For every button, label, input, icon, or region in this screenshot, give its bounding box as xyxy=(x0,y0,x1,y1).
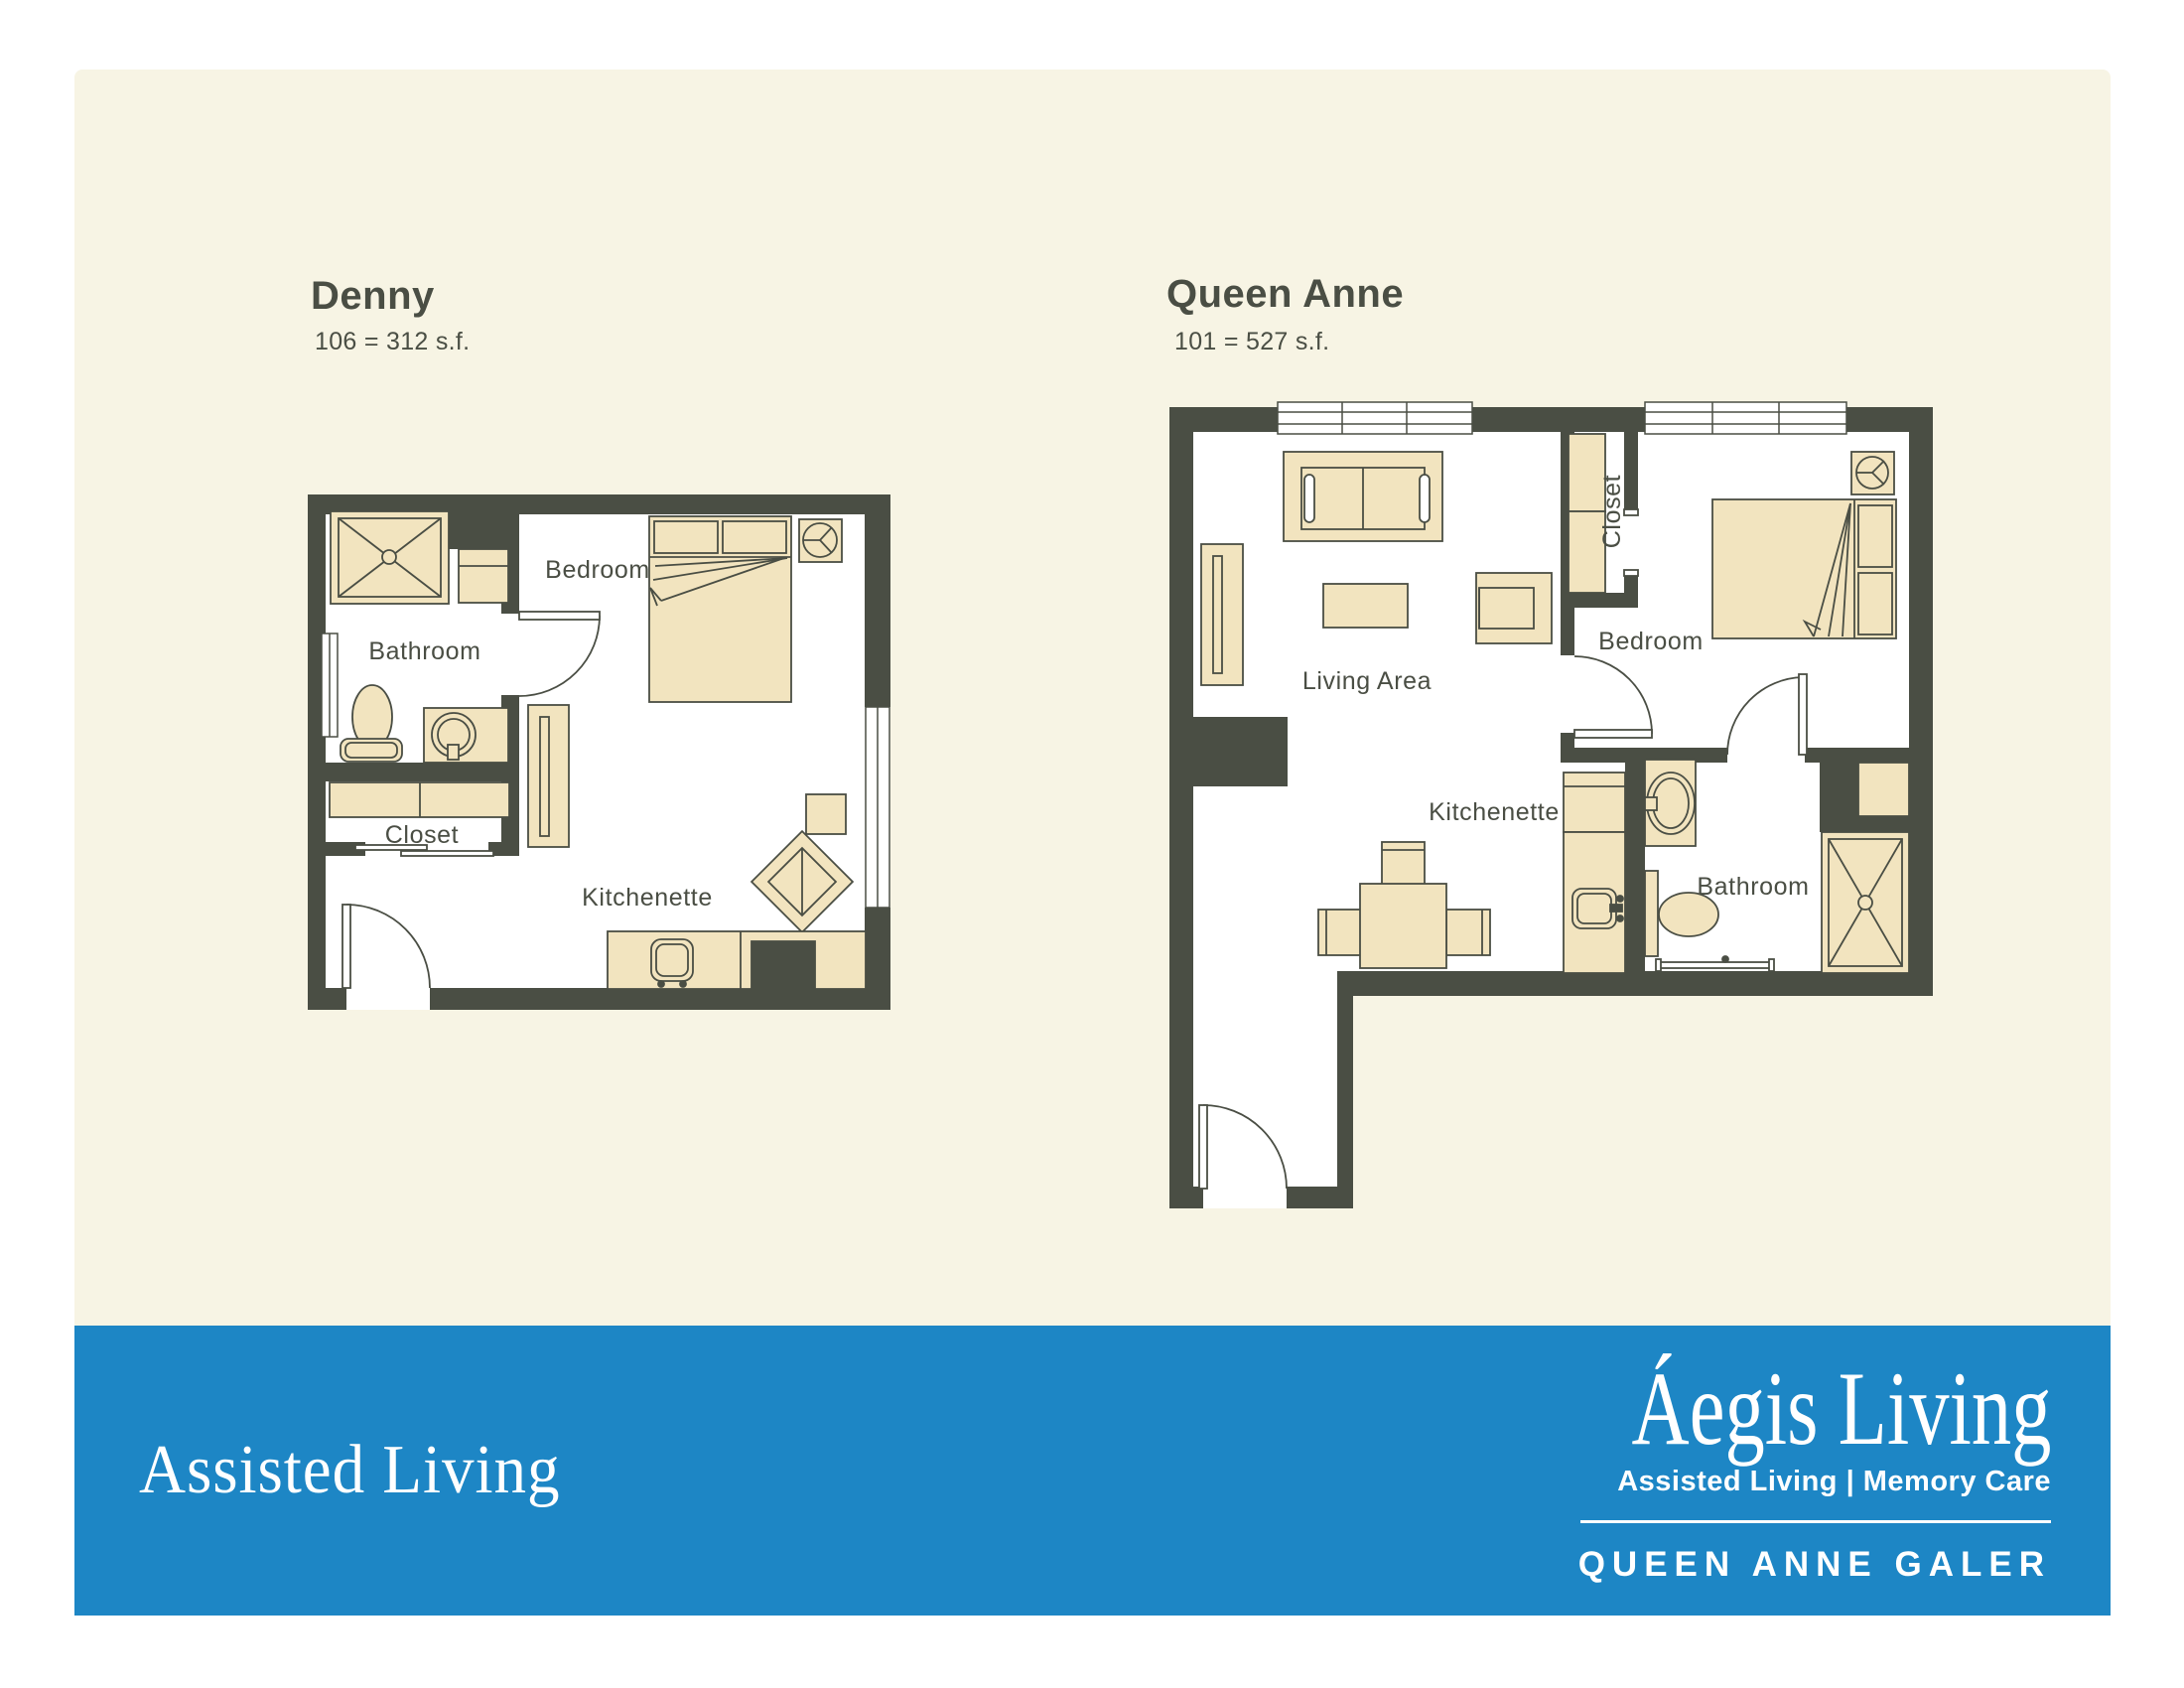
stove xyxy=(751,941,815,989)
closet-shelf xyxy=(330,782,509,817)
bed xyxy=(649,516,791,702)
assisted-living-title: Assisted Living xyxy=(139,1431,560,1510)
bath-cabinet xyxy=(459,549,508,603)
queen-anne-title: Queen Anne xyxy=(1166,272,1404,317)
bathroom-sink xyxy=(424,708,508,763)
coffee-table xyxy=(1323,584,1408,628)
qa-bedroom-label: Bedroom xyxy=(1598,628,1704,655)
closet-opening-tick xyxy=(1624,570,1638,576)
denny-floor-plan: Bathroom Bedroom Closet Kitchenette xyxy=(288,482,903,1023)
tv-console xyxy=(1201,544,1243,685)
denny-title: Denny xyxy=(311,274,435,319)
community-name: QUEEN ANNE GALER xyxy=(1578,1545,2051,1585)
denny-subtitle: 106 = 312 s.f. xyxy=(315,328,470,356)
queen-anne-floor-plan: Living Area Closet Bedroom Kitchenette B… xyxy=(1157,392,1951,1221)
logo-divider xyxy=(1580,1520,2051,1523)
aegis-living-logo: Áegis Living Assisted Living | Memory Ca… xyxy=(1499,1326,2051,1616)
ceiling-fan-icon xyxy=(1851,452,1894,494)
bedroom-door-leaf xyxy=(1574,730,1652,738)
shower xyxy=(1822,832,1909,973)
logo-wordmark: Áegis Living xyxy=(1631,1356,2051,1462)
bathroom-door-leaf xyxy=(519,612,600,620)
entry-door-leaf xyxy=(342,905,350,988)
shower xyxy=(331,511,449,604)
qa-kitchenette-label: Kitchenette xyxy=(1429,798,1560,826)
denny-closet-label: Closet xyxy=(385,821,459,849)
queen-anne-subtitle: 101 = 527 s.f. xyxy=(1174,328,1329,356)
linen-cabinet xyxy=(1858,763,1909,816)
sofa xyxy=(1284,452,1442,541)
closet-door-track xyxy=(401,851,493,856)
banner-section-title: Assisted Living xyxy=(139,1326,592,1616)
wardrobe xyxy=(528,705,569,847)
side-table xyxy=(806,794,846,834)
closet-opening-tick xyxy=(1624,509,1638,515)
denny-kitchenette-label: Kitchenette xyxy=(582,884,713,912)
qa-living-area-label: Living Area xyxy=(1302,667,1432,695)
floor-plan-page: Denny 106 = 312 s.f. Queen Anne 101 = 52… xyxy=(0,0,2184,1688)
qa-closet-label: Closet xyxy=(1598,475,1626,548)
denny-bedroom-label: Bedroom xyxy=(545,556,650,584)
kitchen-counter xyxy=(608,931,866,989)
bed xyxy=(1712,499,1896,638)
bathroom-door-leaf xyxy=(1799,674,1807,755)
qa-bathroom-label: Bathroom xyxy=(1697,873,1809,901)
window xyxy=(1645,402,1846,434)
armchair xyxy=(1476,573,1552,643)
kitchen-counter xyxy=(1564,773,1625,973)
footer-banner: Assisted Living Áegis Living Assisted Li… xyxy=(74,1326,2111,1616)
denny-bathroom-label: Bathroom xyxy=(368,637,480,665)
entry-door-leaf xyxy=(1199,1105,1207,1189)
vanity-sink xyxy=(1645,760,1696,846)
qa-corridor-floor xyxy=(1169,986,1353,1208)
window xyxy=(1278,402,1472,434)
ceiling-fan-icon xyxy=(799,519,842,562)
logo-tagline: Assisted Living | Memory Care xyxy=(1617,1466,2051,1498)
